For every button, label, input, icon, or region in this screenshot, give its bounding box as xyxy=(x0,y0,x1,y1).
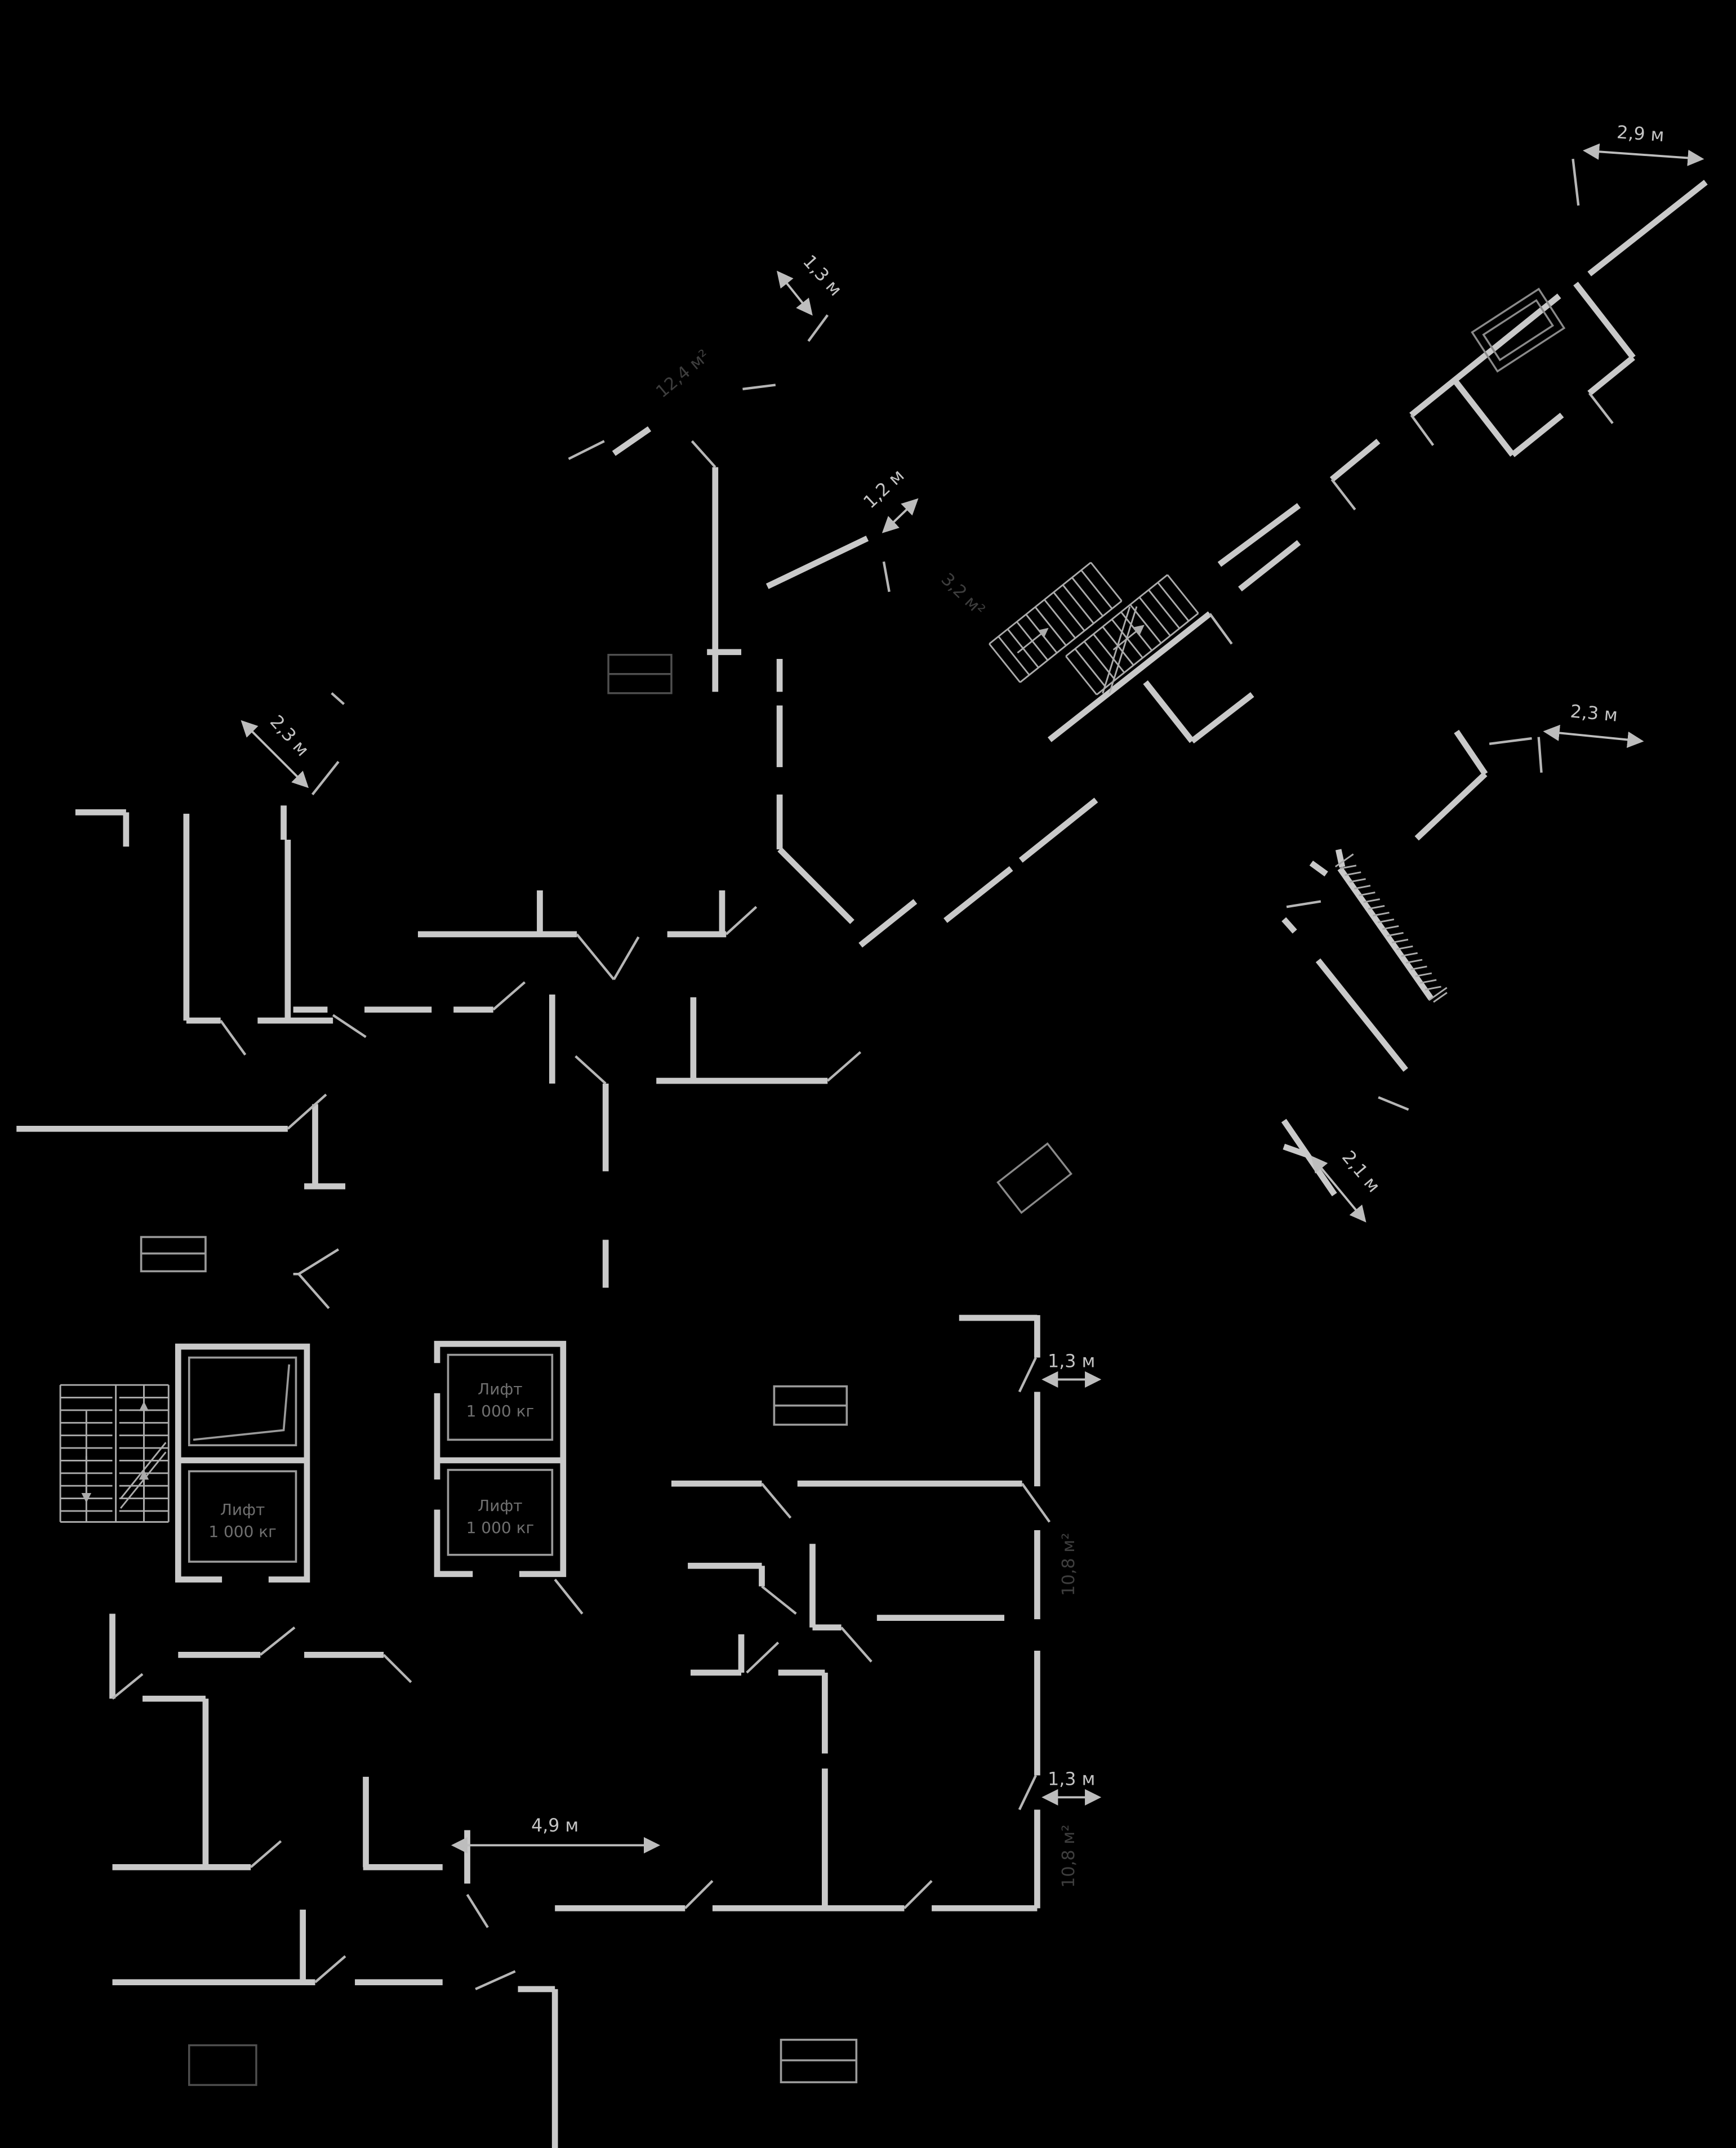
dimension-4-9m: 4,9 м xyxy=(453,1816,657,1845)
dimension-label: 1,3 м xyxy=(799,251,845,300)
shaft-box xyxy=(141,1237,206,1271)
furniture-rect xyxy=(998,1144,1071,1213)
elevator-name: Лифт xyxy=(478,1380,522,1398)
dimension-1-3m-diagonal: 1,3 м xyxy=(778,251,846,314)
area-label-3-2: 3,2 м² xyxy=(937,569,989,620)
dimension-label: 1,2 м xyxy=(860,465,908,513)
dimension-2-1m: 2,1 м xyxy=(1312,1147,1383,1221)
dimension-1-3m-upper: 1,3 м xyxy=(1044,1352,1099,1380)
area-label-12-4: 12,4 м² xyxy=(652,346,714,402)
area-label-10-8-lower: 10,8 м² xyxy=(1059,1825,1079,1888)
elevator-label-left-bottom: Лифт 1 000 кг xyxy=(208,1500,277,1541)
dimension-label: 2,9 м xyxy=(1616,122,1664,146)
shaft-box xyxy=(781,2040,857,2082)
elevator-capacity: 1 000 кг xyxy=(208,1522,277,1541)
walls xyxy=(16,182,1706,2148)
elevator-label-right-bottom: Лифт 1 000 кг xyxy=(466,1496,535,1537)
dimensions: 2,9 м 1,3 м 1,2 м 2,3 м 2,3 м 2,1 м 1,3 … xyxy=(243,122,1702,1845)
dimension-label: 2,1 м xyxy=(1338,1147,1384,1197)
elevator-label-right-top: Лифт 1 000 кг xyxy=(466,1380,535,1420)
floor-plan: Лифт 1 000 кг Лифт 1 000 кг Лифт 1 000 к… xyxy=(0,0,1736,2148)
shaft-box xyxy=(774,1387,847,1425)
dimension-label: 1,3 м xyxy=(1048,1769,1095,1789)
elevator-name: Лифт xyxy=(220,1500,265,1519)
dimension-1-3m-lower: 1,3 м xyxy=(1044,1769,1099,1797)
elevator-shaft-left: Лифт 1 000 кг xyxy=(178,1347,307,1588)
ladder-hatch xyxy=(1328,844,1449,1004)
door-leaves xyxy=(113,159,1613,1989)
dimension-label: 2,3 м xyxy=(1569,701,1618,725)
elevator-shaft-right: Лифт 1 000 кг Лифт 1 000 кг xyxy=(429,1344,563,1582)
area-label-10-8-upper: 10,8 м² xyxy=(1059,1533,1079,1596)
elevator-bank: Лифт 1 000 кг Лифт 1 000 кг Лифт 1 000 к… xyxy=(178,1344,563,1588)
elevator-capacity: 1 000 кг xyxy=(466,1518,535,1537)
dimension-2-3m-right: 2,3 м xyxy=(1546,701,1641,741)
machine-wedge xyxy=(193,1365,289,1440)
elevator-capacity: 1 000 кг xyxy=(466,1402,535,1420)
dimension-label: 4,9 м xyxy=(531,1816,578,1836)
shaft-box xyxy=(608,655,671,693)
page: { "plan": { "type": "floor-plan", "backg… xyxy=(0,0,1736,2148)
stairs-lower xyxy=(60,1385,168,1522)
shaft-boxes xyxy=(141,289,1564,2085)
dimension-2-3m-left: 2,3 м xyxy=(243,711,313,786)
elevator-name: Лифт xyxy=(478,1496,522,1515)
dimension-2-9m: 2,9 м xyxy=(1585,122,1702,159)
dimension-1-2m: 1,2 м xyxy=(860,465,916,531)
shaft-box xyxy=(189,2045,256,2085)
dimension-label: 1,3 м xyxy=(1048,1352,1095,1372)
